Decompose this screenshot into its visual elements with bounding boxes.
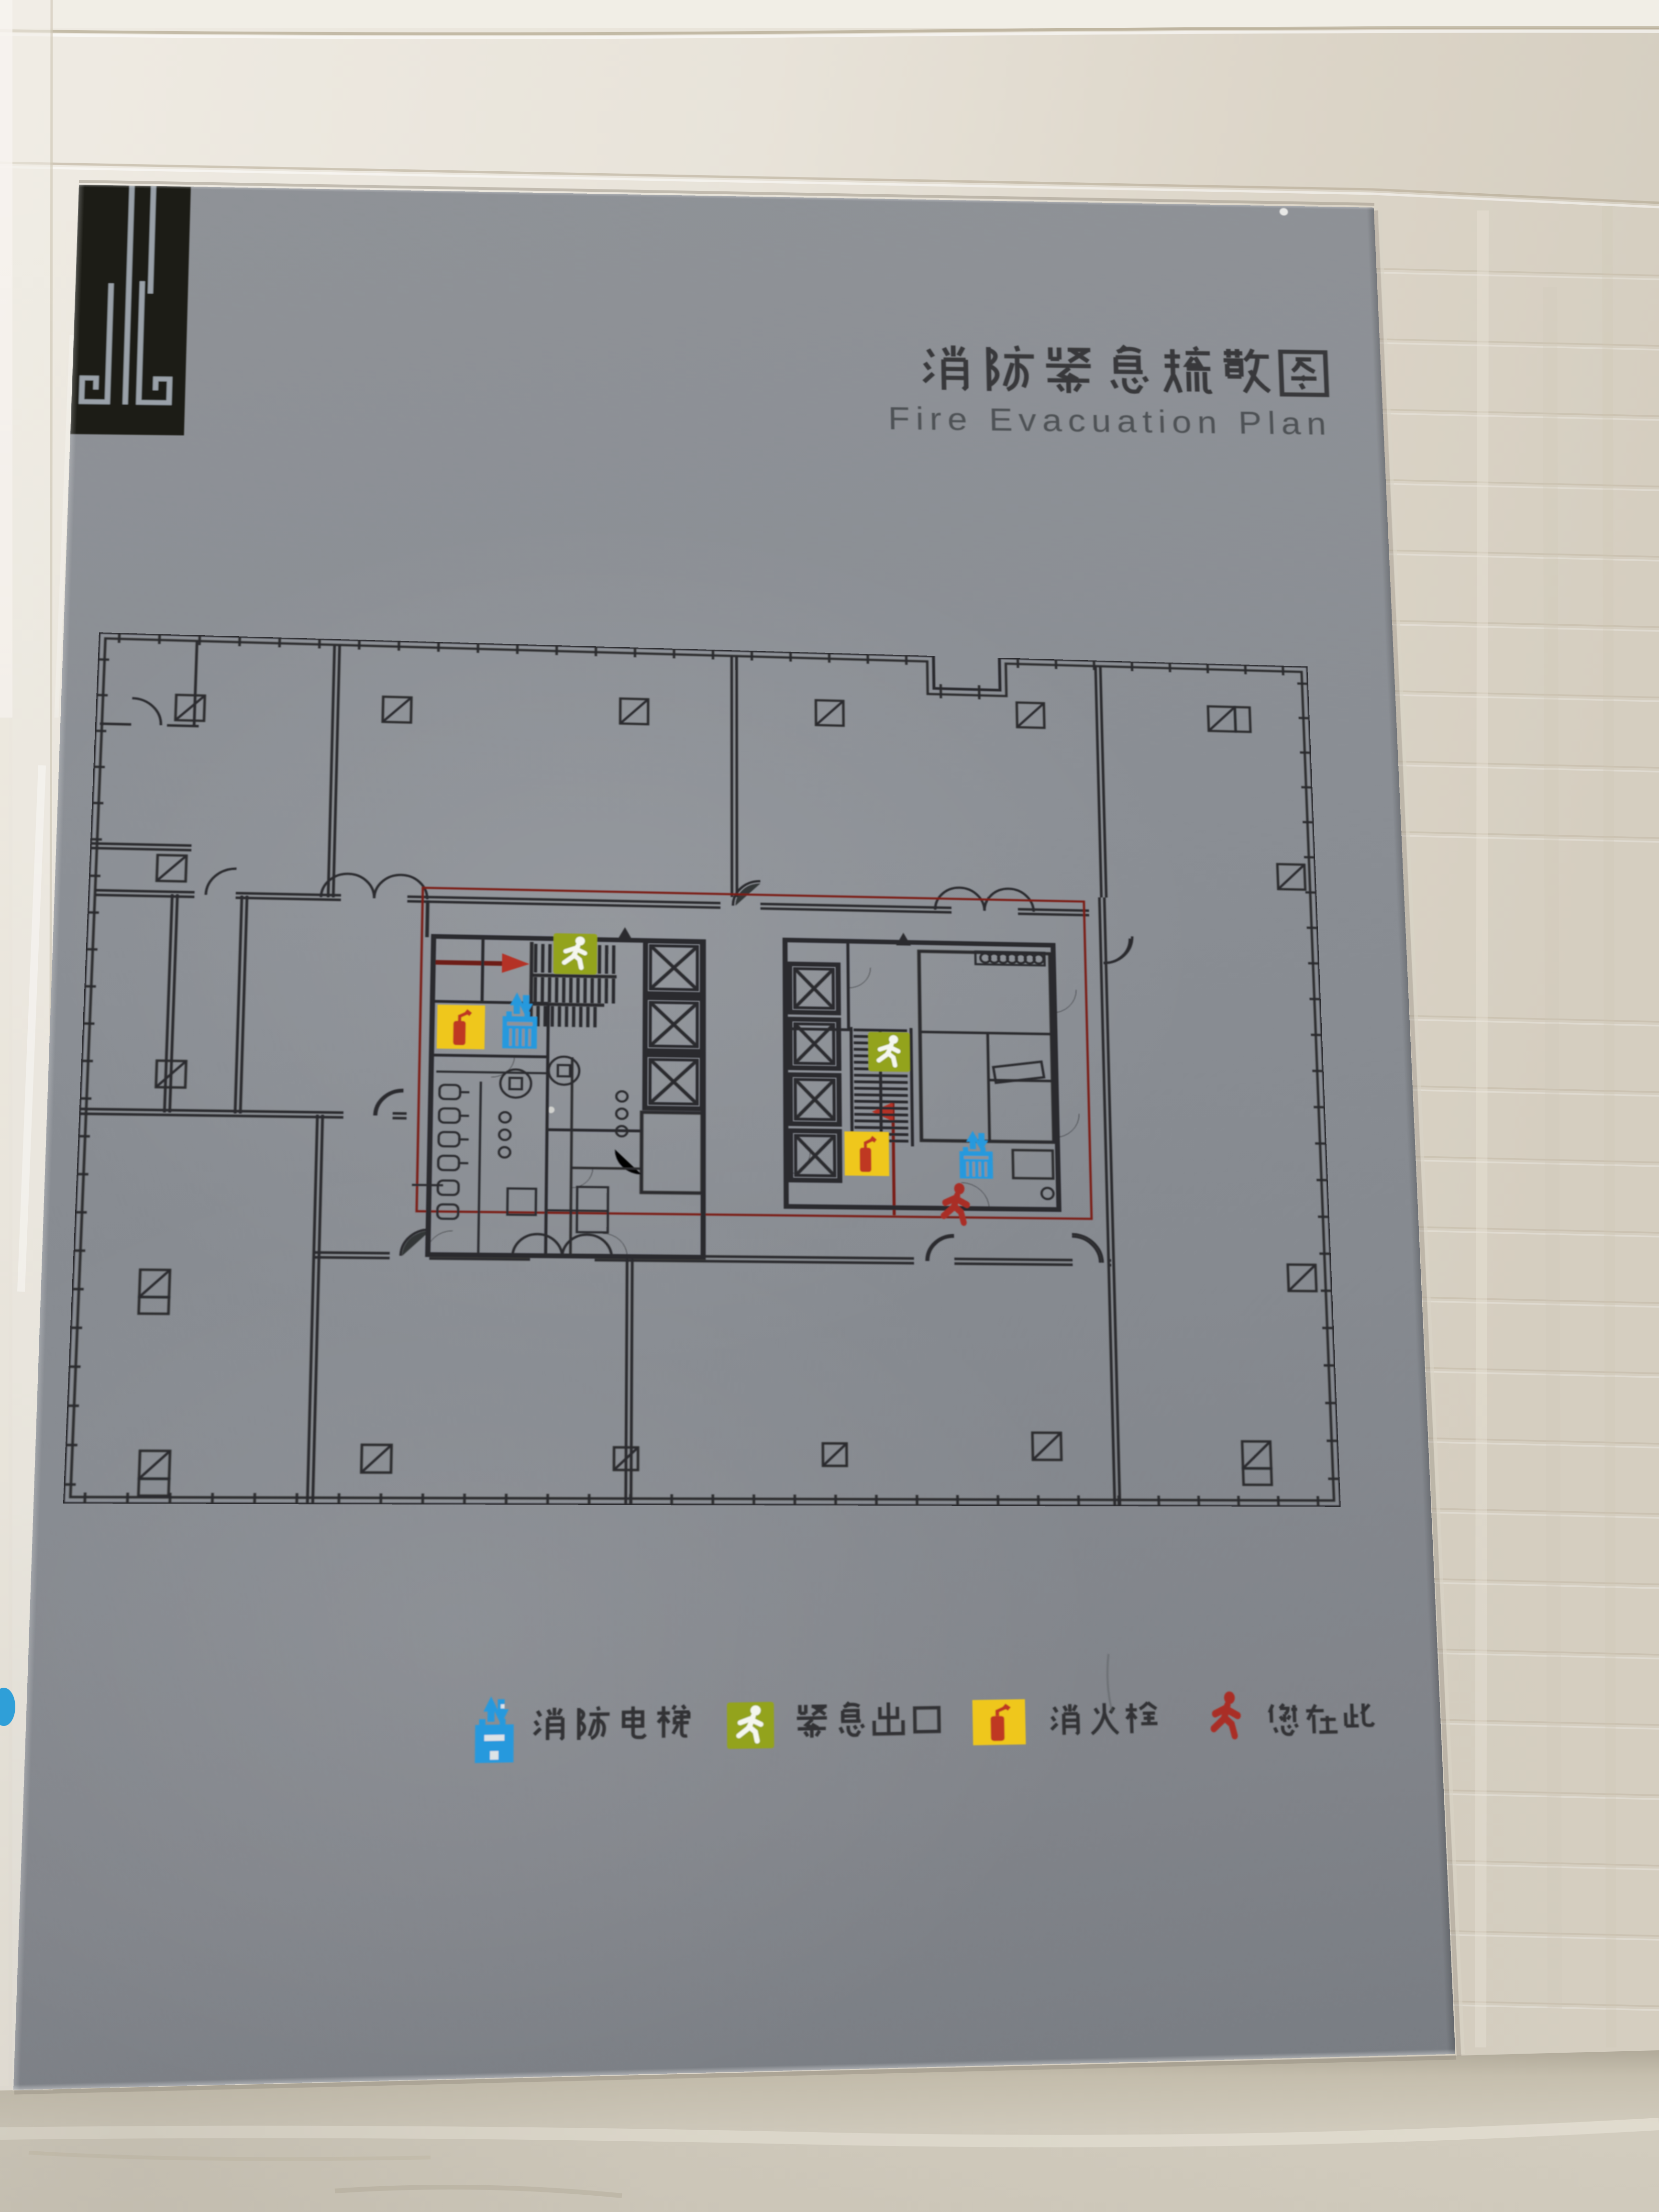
svg-text:Fire Evacuation Plan: Fire Evacuation Plan (888, 401, 1333, 442)
